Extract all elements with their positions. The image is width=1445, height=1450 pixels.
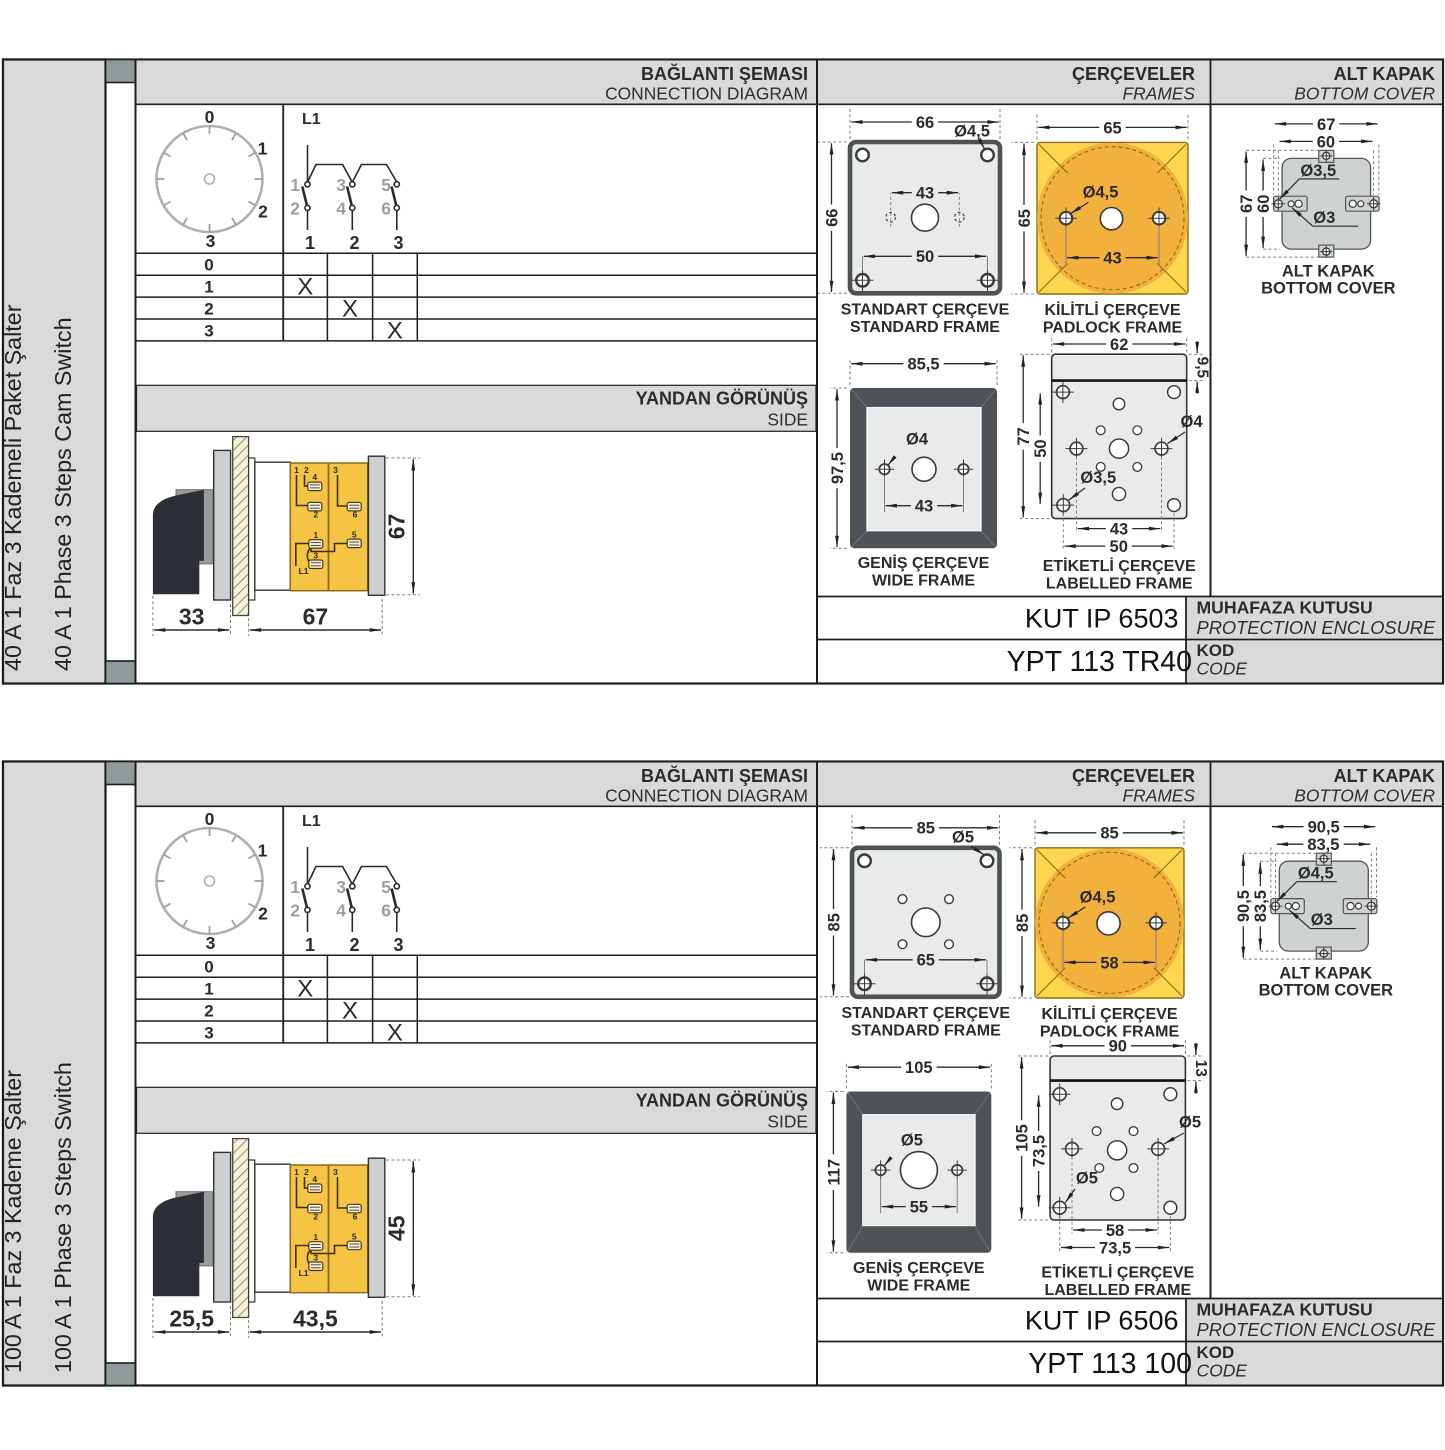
svg-text:105: 105 xyxy=(1014,1124,1032,1152)
svg-text:L1: L1 xyxy=(302,111,321,128)
svg-text:L1: L1 xyxy=(299,1268,309,1278)
svg-text:Ø4,5: Ø4,5 xyxy=(954,123,990,141)
svg-text:X: X xyxy=(342,296,358,323)
svg-text:0: 0 xyxy=(204,256,213,275)
svg-text:L1: L1 xyxy=(302,813,321,830)
svg-text:CONNECTION DIAGRAM: CONNECTION DIAGRAM xyxy=(605,786,808,806)
svg-text:85: 85 xyxy=(1100,825,1118,843)
svg-text:67: 67 xyxy=(1238,195,1256,213)
svg-text:6: 6 xyxy=(353,1212,358,1222)
svg-text:100 A 1 Phase 3 Steps Switch: 100 A 1 Phase 3 Steps Switch xyxy=(50,1062,76,1373)
svg-text:1: 1 xyxy=(313,1232,318,1242)
svg-text:3: 3 xyxy=(393,233,403,253)
svg-text:YANDAN GÖRÜNÜŞ: YANDAN GÖRÜNÜŞ xyxy=(636,1091,808,1111)
svg-text:3: 3 xyxy=(333,465,338,475)
svg-text:Ø4,5: Ø4,5 xyxy=(1080,888,1116,906)
svg-text:WIDE FRAME: WIDE FRAME xyxy=(872,573,975,590)
svg-text:6: 6 xyxy=(381,901,391,921)
svg-text:3: 3 xyxy=(313,1253,318,1263)
svg-text:CONNECTION DIAGRAM: CONNECTION DIAGRAM xyxy=(605,84,808,104)
svg-text:STANDART ÇERÇEVE: STANDART ÇERÇEVE xyxy=(841,1005,1010,1022)
svg-text:62: 62 xyxy=(1110,336,1128,354)
svg-text:1: 1 xyxy=(204,278,213,297)
svg-text:0: 0 xyxy=(205,107,215,127)
svg-text:67: 67 xyxy=(303,604,329,630)
svg-text:STANDARD FRAME: STANDARD FRAME xyxy=(851,1022,1001,1039)
svg-text:60: 60 xyxy=(1317,133,1335,151)
svg-text:43: 43 xyxy=(916,185,934,203)
svg-text:5: 5 xyxy=(352,1232,357,1242)
svg-text:ÇERÇEVELER: ÇERÇEVELER xyxy=(1072,766,1195,786)
svg-text:X: X xyxy=(387,318,403,345)
svg-text:MUHAFAZA KUTUSU: MUHAFAZA KUTUSU xyxy=(1197,598,1373,618)
svg-text:5: 5 xyxy=(352,530,357,540)
svg-text:ALT KAPAK: ALT KAPAK xyxy=(1334,64,1435,84)
svg-text:GENİŞ ÇERÇEVE: GENİŞ ÇERÇEVE xyxy=(858,554,990,572)
svg-text:CODE: CODE xyxy=(1197,659,1248,679)
svg-text:Ø4: Ø4 xyxy=(906,431,929,449)
svg-text:KOD: KOD xyxy=(1197,1343,1235,1362)
svg-text:1: 1 xyxy=(305,935,315,955)
svg-text:1: 1 xyxy=(290,877,300,897)
svg-text:43: 43 xyxy=(1110,521,1128,539)
svg-text:1: 1 xyxy=(294,465,299,475)
svg-text:ÇERÇEVELER: ÇERÇEVELER xyxy=(1072,64,1195,84)
svg-text:25,5: 25,5 xyxy=(169,1306,214,1332)
svg-text:Ø4,5: Ø4,5 xyxy=(1298,865,1334,883)
svg-text:1: 1 xyxy=(258,841,268,861)
svg-text:4: 4 xyxy=(336,199,346,219)
svg-text:2: 2 xyxy=(313,1212,318,1222)
svg-text:1: 1 xyxy=(258,139,268,159)
svg-text:90,5: 90,5 xyxy=(1235,890,1253,922)
svg-text:ALT KAPAK: ALT KAPAK xyxy=(1334,766,1435,786)
svg-text:2: 2 xyxy=(304,465,309,475)
svg-text:40 A 1 Phase 3 Steps Cam Switc: 40 A 1 Phase 3 Steps Cam Switch xyxy=(50,317,76,671)
svg-text:2: 2 xyxy=(349,935,359,955)
svg-text:3: 3 xyxy=(313,551,318,561)
svg-text:90: 90 xyxy=(1109,1038,1127,1056)
svg-text:X: X xyxy=(297,274,313,301)
svg-text:50: 50 xyxy=(1110,538,1128,556)
svg-text:LABELLED FRAME: LABELLED FRAME xyxy=(1046,576,1193,593)
svg-text:4: 4 xyxy=(312,1174,317,1184)
svg-text:X: X xyxy=(342,998,358,1025)
svg-text:Ø3: Ø3 xyxy=(1311,911,1333,929)
svg-text:LABELLED FRAME: LABELLED FRAME xyxy=(1044,1282,1191,1299)
svg-text:3: 3 xyxy=(206,231,216,251)
svg-text:BOTTOM COVER: BOTTOM COVER xyxy=(1261,280,1396,298)
svg-text:65: 65 xyxy=(917,952,935,970)
svg-text:YPT 113 100: YPT 113 100 xyxy=(1028,1348,1192,1380)
svg-text:MUHAFAZA KUTUSU: MUHAFAZA KUTUSU xyxy=(1197,1300,1373,1320)
svg-text:STANDARD FRAME: STANDARD FRAME xyxy=(850,319,1000,336)
svg-text:BOTTOM COVER: BOTTOM COVER xyxy=(1294,786,1435,806)
svg-text:Ø5: Ø5 xyxy=(952,828,974,846)
svg-text:GENİŞ ÇERÇEVE: GENİŞ ÇERÇEVE xyxy=(853,1259,985,1277)
svg-text:SIDE: SIDE xyxy=(767,1112,808,1132)
svg-text:2: 2 xyxy=(204,299,213,318)
svg-text:BAĞLANTI ŞEMASI: BAĞLANTI ŞEMASI xyxy=(641,765,808,786)
svg-text:Ø3,5: Ø3,5 xyxy=(1080,469,1116,487)
svg-text:3: 3 xyxy=(336,877,346,897)
svg-text:58: 58 xyxy=(1106,1222,1124,1240)
svg-text:90,5: 90,5 xyxy=(1308,819,1340,837)
svg-text:WIDE FRAME: WIDE FRAME xyxy=(867,1277,970,1294)
svg-text:73,5: 73,5 xyxy=(1031,1135,1049,1167)
svg-text:Ø3,5: Ø3,5 xyxy=(1300,162,1336,180)
svg-text:3: 3 xyxy=(393,935,403,955)
svg-text:9,5: 9,5 xyxy=(1193,357,1210,379)
svg-text:KOD: KOD xyxy=(1197,641,1235,660)
svg-text:YPT 113 TR40: YPT 113 TR40 xyxy=(1007,646,1192,678)
svg-text:60: 60 xyxy=(1255,195,1273,213)
svg-text:43: 43 xyxy=(915,498,933,516)
svg-text:6: 6 xyxy=(353,510,358,520)
svg-text:67: 67 xyxy=(1317,116,1335,134)
svg-text:55: 55 xyxy=(910,1199,928,1217)
svg-text:5: 5 xyxy=(381,175,391,195)
svg-text:PADLOCK FRAME: PADLOCK FRAME xyxy=(1043,320,1183,337)
svg-text:BOTTOM COVER: BOTTOM COVER xyxy=(1294,84,1435,104)
svg-text:4: 4 xyxy=(312,472,317,482)
svg-text:3: 3 xyxy=(333,1167,338,1177)
svg-text:2: 2 xyxy=(258,202,268,222)
svg-text:0: 0 xyxy=(205,809,215,829)
svg-text:FRAMES: FRAMES xyxy=(1123,786,1196,806)
svg-text:ETİKETLİ ÇERÇEVE: ETİKETLİ ÇERÇEVE xyxy=(1041,1264,1194,1282)
svg-text:3: 3 xyxy=(204,1023,213,1042)
svg-text:FRAMES: FRAMES xyxy=(1123,84,1196,104)
svg-text:Ø5: Ø5 xyxy=(1076,1170,1098,1188)
svg-text:83,5: 83,5 xyxy=(1252,890,1270,922)
svg-text:97,5: 97,5 xyxy=(829,452,847,484)
svg-text:X: X xyxy=(387,1020,403,1047)
svg-text:43,5: 43,5 xyxy=(293,1306,338,1332)
svg-text:3: 3 xyxy=(336,175,346,195)
svg-text:1: 1 xyxy=(290,175,300,195)
svg-text:2: 2 xyxy=(349,233,359,253)
svg-text:2: 2 xyxy=(313,510,318,520)
svg-text:73,5: 73,5 xyxy=(1099,1239,1131,1257)
svg-text:6: 6 xyxy=(381,199,391,219)
svg-text:105: 105 xyxy=(905,1059,933,1077)
svg-text:1: 1 xyxy=(294,1167,299,1177)
svg-text:4: 4 xyxy=(336,901,346,921)
svg-text:65: 65 xyxy=(1103,119,1121,137)
svg-text:83,5: 83,5 xyxy=(1307,836,1339,854)
svg-text:5: 5 xyxy=(381,877,391,897)
svg-text:ETİKETLİ ÇERÇEVE: ETİKETLİ ÇERÇEVE xyxy=(1043,557,1196,575)
svg-text:45: 45 xyxy=(384,1215,410,1241)
svg-text:3: 3 xyxy=(206,933,216,953)
svg-text:85: 85 xyxy=(917,820,935,838)
svg-text:40 A 1 Faz 3 Kademeli Paket Şa: 40 A 1 Faz 3 Kademeli Paket Şalter xyxy=(0,304,26,671)
svg-text:ALT KAPAK: ALT KAPAK xyxy=(1279,965,1372,983)
svg-text:KİLİTLİ ÇERÇEVE: KİLİTLİ ÇERÇEVE xyxy=(1041,1005,1177,1023)
svg-text:65: 65 xyxy=(1016,209,1034,227)
svg-text:KUT IP 6503: KUT IP 6503 xyxy=(1025,604,1179,634)
svg-text:Ø3: Ø3 xyxy=(1313,209,1335,227)
svg-text:CODE: CODE xyxy=(1197,1361,1248,1381)
svg-text:117: 117 xyxy=(825,1159,843,1186)
svg-text:BOTTOM COVER: BOTTOM COVER xyxy=(1259,982,1394,1000)
svg-text:33: 33 xyxy=(179,604,205,630)
svg-text:Ø5: Ø5 xyxy=(1179,1114,1201,1132)
svg-text:X: X xyxy=(297,976,313,1003)
svg-text:PROTECTION ENCLOSURE: PROTECTION ENCLOSURE xyxy=(1197,1319,1437,1340)
svg-text:2: 2 xyxy=(204,1001,213,1020)
svg-text:SIDE: SIDE xyxy=(767,410,808,430)
svg-text:43: 43 xyxy=(1103,250,1121,268)
svg-text:YANDAN GÖRÜNÜŞ: YANDAN GÖRÜNÜŞ xyxy=(636,389,808,409)
svg-text:1: 1 xyxy=(305,233,315,253)
svg-text:STANDART ÇERÇEVE: STANDART ÇERÇEVE xyxy=(841,301,1010,318)
svg-text:50: 50 xyxy=(1032,439,1050,457)
svg-text:50: 50 xyxy=(916,248,934,266)
svg-text:L1: L1 xyxy=(299,566,309,576)
svg-text:58: 58 xyxy=(1100,954,1118,972)
svg-text:85: 85 xyxy=(825,913,843,931)
svg-text:3: 3 xyxy=(204,321,213,340)
svg-text:0: 0 xyxy=(204,958,213,977)
svg-text:KİLİTLİ ÇERÇEVE: KİLİTLİ ÇERÇEVE xyxy=(1044,301,1180,319)
svg-text:Ø5: Ø5 xyxy=(901,1132,923,1150)
svg-text:1: 1 xyxy=(313,530,318,540)
svg-text:KUT IP 6506: KUT IP 6506 xyxy=(1025,1306,1179,1336)
svg-text:66: 66 xyxy=(916,114,934,132)
svg-text:PROTECTION ENCLOSURE: PROTECTION ENCLOSURE xyxy=(1197,617,1437,638)
svg-text:2: 2 xyxy=(304,1167,309,1177)
svg-text:ALT KAPAK: ALT KAPAK xyxy=(1282,263,1375,281)
svg-text:85: 85 xyxy=(1014,914,1032,932)
svg-text:Ø4,5: Ø4,5 xyxy=(1083,184,1119,202)
svg-text:2: 2 xyxy=(258,904,268,924)
svg-text:2: 2 xyxy=(290,199,300,219)
svg-text:85,5: 85,5 xyxy=(907,356,939,374)
svg-text:77: 77 xyxy=(1015,427,1033,445)
svg-text:67: 67 xyxy=(384,514,410,540)
svg-text:BAĞLANTI ŞEMASI: BAĞLANTI ŞEMASI xyxy=(641,63,808,84)
svg-text:1: 1 xyxy=(204,980,213,999)
svg-text:100 A 1 Faz 3 Kademe Şalter: 100 A 1 Faz 3 Kademe Şalter xyxy=(0,1070,26,1373)
svg-text:Ø4: Ø4 xyxy=(1180,413,1203,431)
svg-text:2: 2 xyxy=(290,901,300,921)
svg-text:13: 13 xyxy=(1192,1060,1209,1078)
svg-text:66: 66 xyxy=(823,209,841,227)
